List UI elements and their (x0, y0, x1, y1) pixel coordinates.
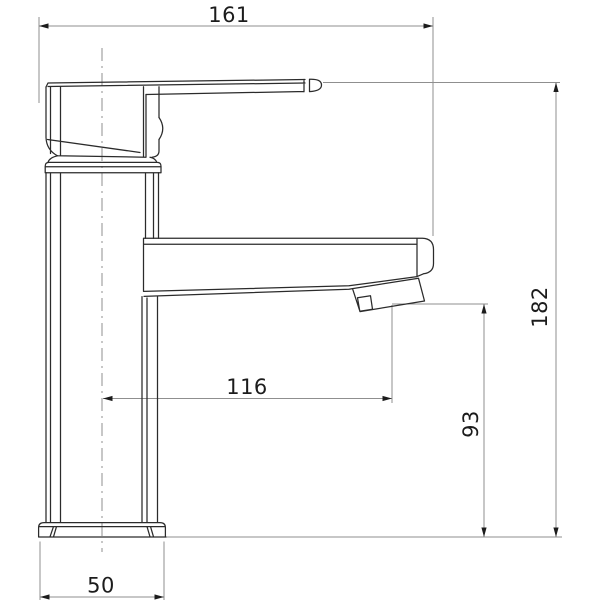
dim-outlet-height-label: 93 (459, 410, 483, 438)
dimension-arrows-layer (39, 23, 559, 599)
dim-overall-width-label: 161 (208, 3, 250, 27)
technical-drawing-canvas: 161 182 93 116 50 (0, 0, 600, 600)
drawing-page: 161 182 93 116 50 (0, 0, 600, 600)
dim-spout-reach-label: 116 (226, 375, 268, 399)
mixer-screw-arc (159, 118, 163, 140)
dim-base-width-label: 50 (87, 574, 115, 598)
dim-93-arrow-top (481, 304, 486, 314)
aerator (353, 278, 425, 311)
dim-161-arrow-right (424, 23, 434, 28)
faucet-outline-layer (39, 79, 434, 537)
collar (45, 156, 161, 173)
dim-93-arrow-bottom (481, 528, 486, 538)
dim-161-arrow-left (39, 23, 49, 28)
dim-overall-height-label: 182 (528, 286, 552, 328)
dim-182-arrow-bottom (553, 528, 558, 538)
dim-116-arrow-left (103, 396, 113, 401)
spout (144, 238, 434, 296)
dimension-labels-layer: 161 182 93 116 50 (87, 3, 552, 598)
dim-182-arrow-top (553, 83, 558, 93)
dim-50-arrow-right (155, 594, 165, 599)
handle-lever (46, 79, 322, 94)
dim-116-arrow-right (383, 396, 393, 401)
handle-body (46, 87, 159, 157)
dim-50-arrow-left (40, 594, 50, 599)
